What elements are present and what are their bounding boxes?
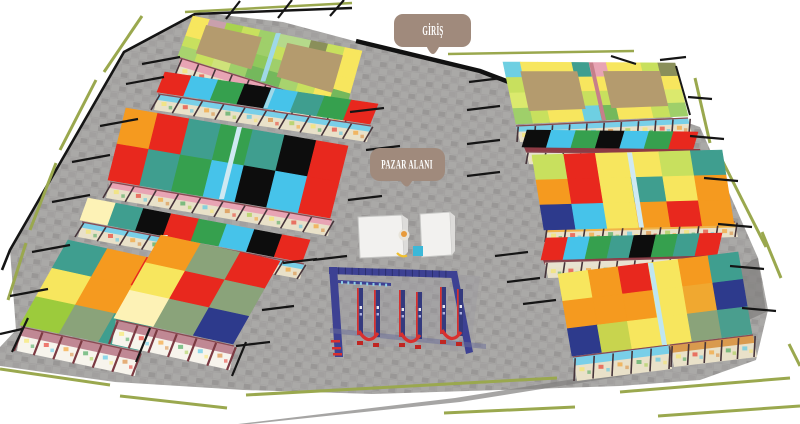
svg-text:GİRİŞ: GİRİŞ xyxy=(422,24,443,39)
svg-text:PAZAR ALANI: PAZAR ALANI xyxy=(381,159,433,173)
